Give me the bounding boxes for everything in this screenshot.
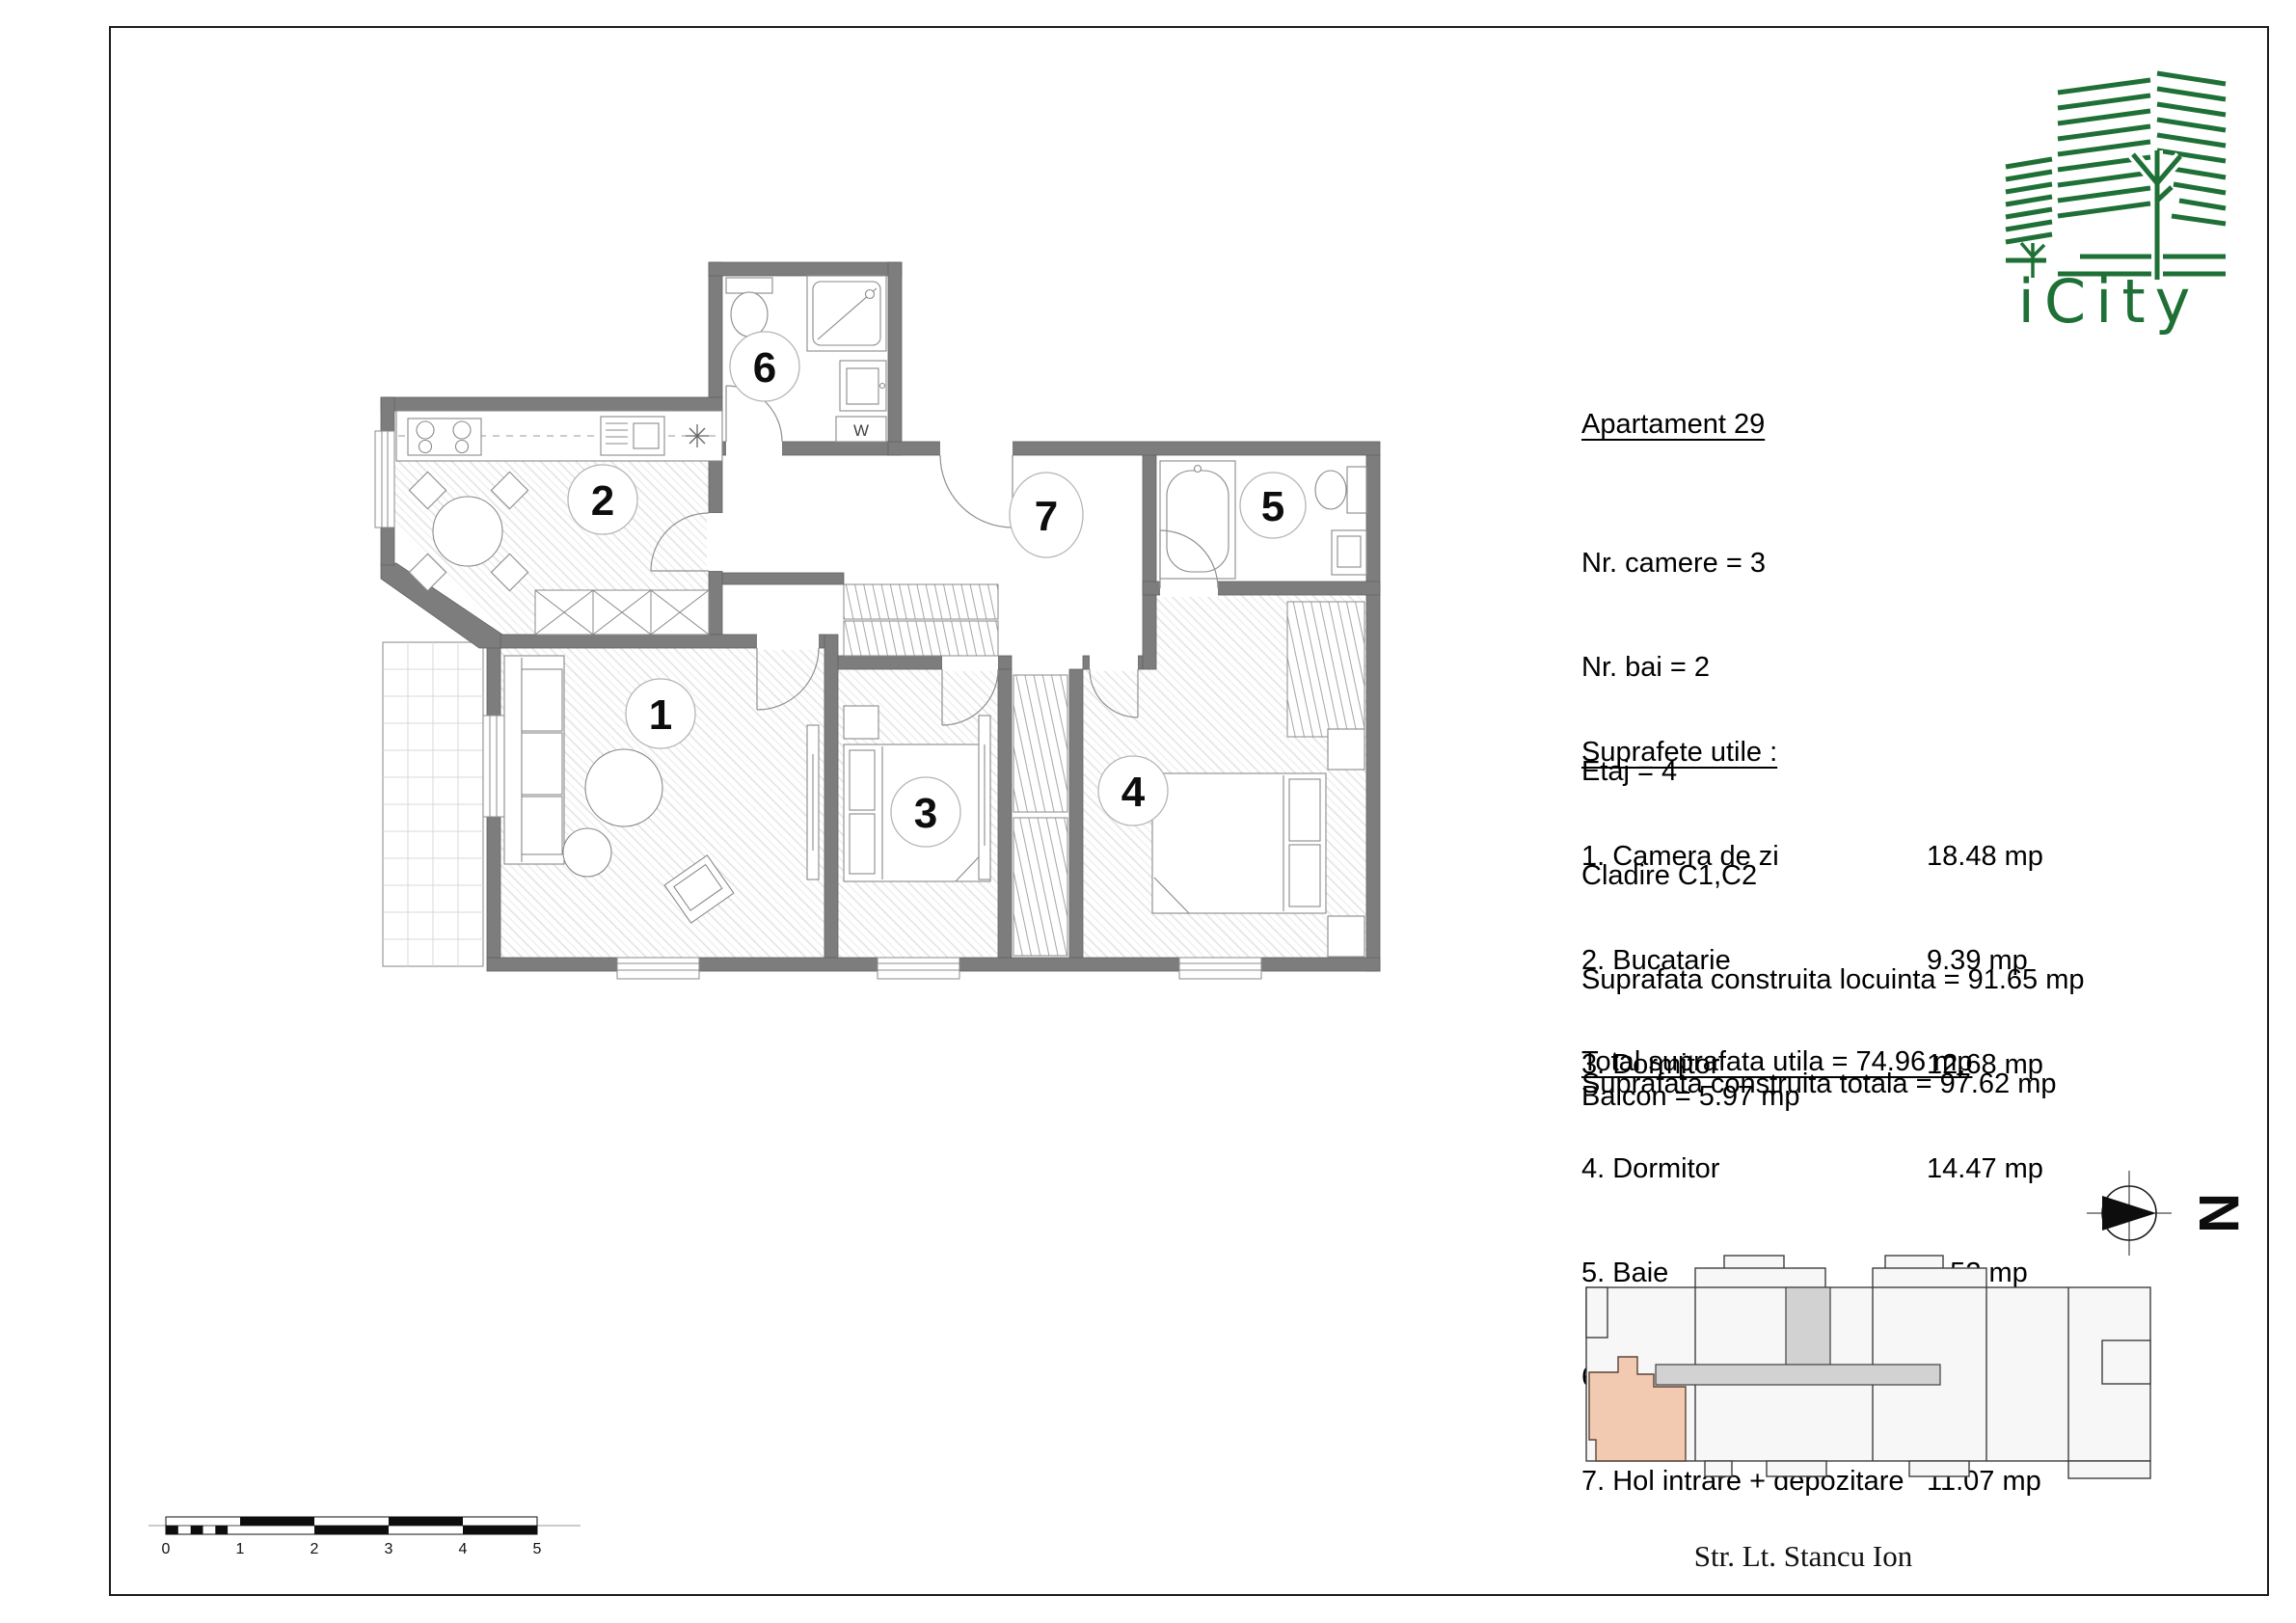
scale-label-1: 1 bbox=[236, 1541, 245, 1557]
balcony-door-window bbox=[483, 716, 504, 817]
hall-wardrobes bbox=[844, 584, 998, 656]
washer-label: W bbox=[853, 421, 869, 440]
north-label: N bbox=[2187, 1193, 2250, 1233]
nightstand bbox=[1328, 916, 1364, 957]
window-kitchen-left bbox=[375, 431, 394, 527]
room-1-number: 1 bbox=[649, 691, 672, 739]
sink-icon bbox=[840, 361, 886, 411]
side-table bbox=[563, 828, 611, 877]
area-room-name: 2. Bucatarie bbox=[1581, 943, 1731, 978]
areas-heading: Suprafete utile : bbox=[1581, 735, 1777, 770]
total-area: Total suprafata utila = 74.96 mp bbox=[1581, 1044, 1972, 1079]
area-room-value: 14.47 mp bbox=[1927, 1151, 2043, 1186]
area-row: 1. Camera de zi 18.48 mp bbox=[1581, 839, 2218, 874]
area-row: 2. Bucatarie 9.39 mp bbox=[1581, 943, 2218, 978]
room-4-number: 4 bbox=[1121, 769, 1146, 816]
hall-closet-column bbox=[1013, 675, 1067, 956]
bed4-wardrobe bbox=[1287, 602, 1364, 737]
window-bed3 bbox=[878, 958, 959, 979]
room-5-number: 5 bbox=[1261, 483, 1284, 530]
balcony-area: Balcon = 5.97 mp bbox=[1581, 1079, 1800, 1114]
area-room-value: 9.39 mp bbox=[1927, 943, 2028, 978]
scale-label-3: 3 bbox=[385, 1541, 393, 1557]
scale-label-2: 2 bbox=[311, 1541, 319, 1557]
kitchen-door-gap bbox=[707, 513, 724, 571]
room-2-number: 2 bbox=[591, 477, 614, 525]
living-door-gap bbox=[757, 633, 819, 650]
coffee-table bbox=[585, 749, 662, 826]
entrance-door-gap bbox=[940, 440, 1013, 457]
toilet-icon bbox=[726, 278, 772, 337]
window-living bbox=[617, 958, 699, 979]
shower-icon bbox=[807, 276, 886, 351]
sink-icon bbox=[1332, 530, 1366, 575]
bed4-door-gap bbox=[1090, 654, 1138, 671]
scale-label-5: 5 bbox=[533, 1541, 542, 1557]
apartment-title: Apartament 29 bbox=[1581, 407, 1765, 442]
street-name: Str. Lt. Stancu Ion bbox=[1610, 1539, 1996, 1574]
detail-line: Nr. bai = 2 bbox=[1581, 650, 2085, 685]
toilet-icon bbox=[1315, 467, 1366, 513]
tv-board-bed3 bbox=[979, 716, 990, 879]
area-room-value: 18.48 mp bbox=[1927, 839, 2043, 874]
logo-building-icon bbox=[2006, 73, 2226, 280]
scale-label-0: 0 bbox=[162, 1541, 171, 1557]
bed bbox=[1152, 773, 1326, 913]
tv-board-living bbox=[807, 725, 819, 879]
floor-plan: W bbox=[371, 253, 1384, 1014]
area-room-name: 1. Camera de zi bbox=[1581, 839, 1779, 874]
building-key-map bbox=[1581, 1244, 2179, 1514]
area-room-name: 4. Dormitor bbox=[1581, 1151, 1719, 1186]
room-3-number: 3 bbox=[914, 790, 937, 837]
bed3-door-gap bbox=[942, 654, 998, 671]
balcony bbox=[383, 642, 483, 966]
nightstand bbox=[844, 706, 878, 739]
room-6-number: 6 bbox=[753, 344, 776, 392]
bath5-door-gap bbox=[1160, 580, 1218, 597]
bathtub-icon bbox=[1160, 461, 1235, 579]
sofa bbox=[504, 656, 564, 864]
bath6-door-gap bbox=[726, 440, 782, 457]
stove-icon bbox=[408, 419, 481, 455]
plan-sheet: W bbox=[0, 0, 2296, 1623]
icity-logo: iCity bbox=[1988, 37, 2229, 338]
window-bed4 bbox=[1179, 958, 1261, 979]
entrance-door bbox=[940, 455, 1013, 527]
kitchen-storage-closet bbox=[535, 590, 709, 635]
room-7-number: 7 bbox=[1035, 493, 1058, 540]
scale-label-4: 4 bbox=[459, 1541, 468, 1557]
logo-wordmark: iCity bbox=[2018, 266, 2201, 337]
washing-machine-icon: W bbox=[836, 417, 886, 442]
kitchen-counter bbox=[396, 411, 722, 461]
kitchen-sink-icon bbox=[601, 417, 664, 455]
detail-line: Nr. camere = 3 bbox=[1581, 546, 2085, 581]
nightstand bbox=[1328, 729, 1364, 770]
scale-bar: 0 1 2 3 4 5 bbox=[145, 1501, 588, 1568]
